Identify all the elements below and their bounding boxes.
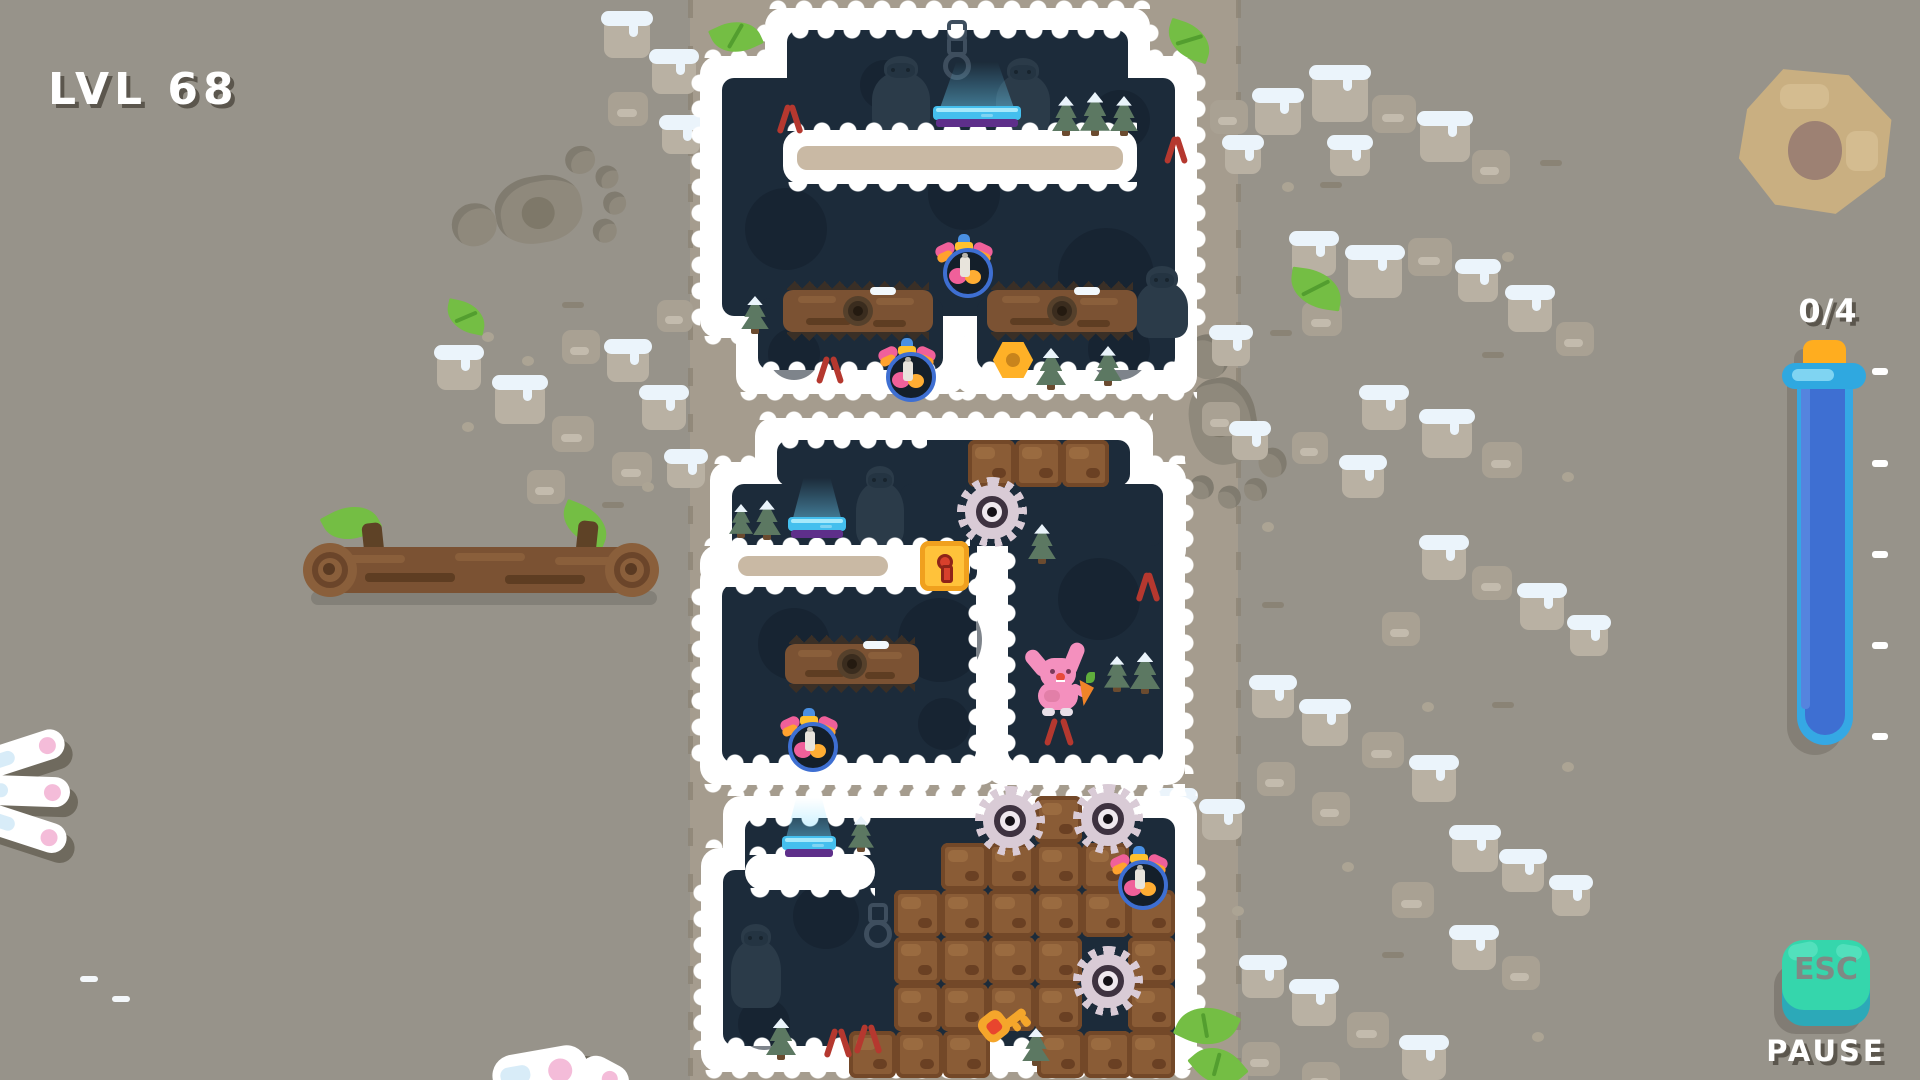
log-end [303,543,357,597]
crate-highlight [901,944,921,956]
snow-ceiling-scallops [777,440,927,453]
platform-icicles [745,888,875,908]
cave-shadow-blob [1058,558,1140,640]
yeti-eye [1014,70,1018,74]
pine-tree [1036,348,1066,390]
rock-tile [1458,266,1498,302]
snow-cap [1399,1035,1449,1050]
tube-collar-highlight [1792,369,1834,381]
pine-snow-cap [1058,96,1074,106]
log-streak [876,298,914,305]
snow-cap [601,11,653,26]
crate [1128,1031,1175,1078]
pebble [1232,906,1244,916]
crate-highlight [1042,803,1062,815]
rock-highlight [1510,973,1529,981]
crate-highlight [950,1038,970,1050]
rock-tile [1348,252,1402,298]
crate-shadow [1086,468,1100,478]
pine-tree [766,1018,796,1060]
snow-drip [1224,810,1233,825]
rock-tile [1502,956,1540,990]
leaf-vein [1201,1012,1209,1037]
potion-ball [886,352,936,402]
claw-marks [856,1024,880,1054]
snow-dash [80,976,98,982]
rock-tile [552,416,594,452]
rock-tile [607,346,649,382]
snow-cap [1249,675,1297,690]
rock-tile [1292,432,1328,464]
rock-tile [612,452,652,486]
crate-shadow [1059,824,1073,834]
crate [1084,1031,1131,1078]
footprint-toe [594,164,620,190]
crate-highlight [948,897,968,909]
grinder-log [987,290,1137,332]
pine-snow-cap [1087,92,1104,103]
rock-tile [437,352,481,390]
crate-shadow [1061,1059,1075,1069]
leaf-vein [1212,1052,1222,1076]
crate-highlight [1022,447,1042,459]
pine-snow-cap [1116,96,1132,106]
snow-drip [1436,766,1445,781]
rock-highlight [1300,448,1318,456]
snow-cap [492,375,548,390]
rock-tile [642,392,686,430]
rock-tile [1452,932,1496,970]
rock-tile [1422,542,1466,580]
pine-snow-cap [1100,346,1116,356]
rock-tile [1556,322,1594,356]
rock-tile [1362,732,1404,768]
rock-tile [1212,332,1250,366]
snow-cap [1455,259,1501,274]
rock-tile [1302,1062,1340,1080]
bunny-ear [489,1042,591,1080]
potion-collectible [786,708,832,764]
snow-drip [1316,990,1325,1005]
ground-dash [1320,182,1342,188]
snow-ceiling-scallops [787,30,1128,43]
snow-cap [1409,755,1459,770]
pine-tree [729,504,753,538]
rock-tile [1225,142,1261,174]
rock-highlight [665,316,683,324]
potion-ball [943,248,993,298]
snow-drip [1573,886,1582,901]
rock-tile [1392,882,1434,918]
snow-drip [676,60,685,75]
snow-scallops [736,392,965,405]
snow-cap [1327,135,1373,150]
spike-teeth [789,684,915,693]
snow-drip [1525,860,1534,875]
snow-drip [1365,466,1374,481]
crate [988,890,1035,937]
claw-stroke [854,1024,869,1054]
potion-progress-tube [1797,365,1853,745]
nut-highlight [1780,84,1829,109]
rock-tile [1422,416,1472,458]
log-streak [365,573,455,582]
footprint-heel [448,199,500,250]
rock-highlight [1491,460,1511,468]
rock-tile [667,456,705,488]
pad-highlight [981,114,993,117]
pebble [1262,522,1274,532]
level-label: LVL 68 [48,64,239,115]
snow-cap [1517,583,1567,598]
yeti-body [1136,282,1188,338]
game-viewport: LVL 68 0/4 ESC PAUSE [0,0,1920,1080]
pad-base [785,849,833,857]
rock-tile [604,18,650,58]
rock-highlight [1265,779,1284,787]
snow-cap [639,385,689,400]
rock-tile [1210,100,1248,134]
nut-hole [1788,121,1842,180]
crate [894,984,941,1031]
rock-tile [527,470,565,504]
crate-shadow [1108,1059,1122,1069]
pine-snow-cap [854,816,869,825]
snow-cap [1309,65,1371,80]
snow-cap [1252,88,1304,103]
ground-dash [1262,602,1284,608]
rock-tile [1472,566,1512,600]
crate-shadow [965,918,979,928]
saw-blade [1073,946,1143,1016]
crate [896,1031,943,1078]
snow-drip [1477,836,1486,851]
nut-hole [1006,353,1020,367]
log-core [323,563,335,575]
yeti-face [744,931,768,946]
snow-cap [1499,849,1547,864]
snow-cap [1419,409,1475,424]
snow-drip [1233,336,1242,351]
ground-dash [1482,352,1504,358]
platform-core [797,146,1123,170]
checkpoint-pad [788,517,846,531]
pad-highlight [812,844,824,847]
esc-pause-button[interactable]: ESC [1782,940,1870,1010]
pine-snow-cap [747,296,763,305]
crate-shadow [1012,918,1026,928]
log-streak [868,652,902,659]
rock-highlight [1356,1030,1377,1038]
crate [941,890,988,937]
rock-highlight [1320,809,1339,817]
rock-highlight [1311,319,1331,327]
log-snow [863,641,889,649]
rock-tile [1242,962,1284,998]
rock-tile [1232,428,1268,460]
rock-highlight [1564,339,1583,347]
potion-vial [903,361,913,381]
snow-drip [1327,710,1336,725]
footprint-toe [601,190,627,216]
pine-tree [1052,96,1080,136]
log-shadow [311,591,657,605]
bunny-eye [1066,669,1071,674]
grinder-hub-center [842,654,862,674]
pine-snow-cap [759,500,775,510]
pebble [522,356,534,366]
bunny-eye [1050,669,1055,674]
pebble [462,422,474,432]
rock-tile [608,92,648,126]
pad-highlight [785,838,833,842]
cave-shadow-blob [918,698,970,750]
tube-tick [1872,551,1888,558]
pine-tree [1080,92,1110,136]
snow-scallops [1185,474,1197,774]
pad-base [936,119,1018,127]
checkpoint-pad [933,106,1021,120]
crate [1062,440,1109,487]
crate-shadow [1039,468,1053,478]
rock-tile [495,382,545,424]
snow-cap [1505,285,1555,300]
ear-pad [599,1068,621,1080]
crate-highlight [1042,850,1062,862]
log-snow [870,287,896,295]
pebble [1422,702,1434,712]
snow-drip [666,396,675,411]
bunny-patch [1044,690,1060,702]
rock-highlight [621,469,641,477]
snow-drip [1532,296,1541,311]
yeti-face [1150,273,1175,288]
snow-platform [745,854,875,890]
snow-drip [1378,256,1387,271]
rock-tile [1292,986,1336,1026]
pine-tree [1130,652,1160,694]
pine-snow-cap [1137,652,1154,662]
rock-tile [1570,622,1608,656]
snow-cap [1199,799,1245,814]
snow-drip [1480,270,1489,285]
snow-drip [1352,146,1361,161]
snow-cap [664,449,708,464]
paw-stripe [0,811,17,832]
potion-ball [1118,860,1168,910]
pebble [1562,472,1574,482]
snow-cap [1289,231,1339,246]
crate-shadow [1012,965,1026,975]
rock-tile [1408,238,1452,276]
snow-drip [1252,432,1261,447]
esc-key-label: ESC [1782,952,1870,987]
snow-drip [1275,686,1284,701]
leaf-vein [1175,34,1203,46]
snow-cap [1339,455,1387,470]
grinder-log [783,290,933,332]
pink-bunny-character [1026,650,1092,716]
collectible-counter: 0/4 [1786,292,1870,330]
crate [988,937,1035,984]
yeti-eye [906,68,910,72]
crate-shadow [1059,965,1073,975]
crate-shadow [1059,1012,1073,1022]
snow-drip [1316,242,1325,257]
rock-tile [1508,292,1552,332]
rock-tile [1412,762,1456,802]
snow-drip [1280,99,1289,114]
pebble [482,332,494,342]
pad-highlight [791,519,843,523]
potion-ball [788,722,838,772]
rock-tile [1330,142,1370,176]
checkpoint-pad [782,836,836,850]
crate-shadow [1012,871,1026,881]
rock-highlight [1480,167,1499,175]
log-streak [1010,318,1055,325]
rock-tile [1252,682,1294,718]
potion-vial [805,731,815,751]
crate-shadow [1106,918,1120,928]
crate-highlight [948,850,968,862]
crate-highlight [1042,991,1062,1003]
yeti-silhouette [731,924,781,1008]
pine-tree [753,500,781,540]
log-streak [873,320,906,327]
yeti-silhouette [1136,266,1188,338]
pine-tree [741,296,769,334]
crate-shadow [1152,965,1166,975]
grinder-log [785,644,919,684]
rock-tile [1402,1042,1446,1080]
claw-marks [818,356,842,384]
log-end [605,543,659,597]
potion-vial-cap [1137,865,1143,870]
snow-cap [1222,135,1264,150]
spike-teeth [789,635,915,644]
crate-shadow [1152,1059,1166,1069]
crate-shadow [918,1012,932,1022]
log-streak [1002,296,1040,303]
crate-highlight [1135,944,1155,956]
footprint-toe [1242,476,1268,502]
platform-icicles [783,182,1137,202]
ear-stripe [499,1064,532,1080]
snow-drip [1448,122,1457,137]
claw-marks [1138,572,1158,602]
snow-drip [523,386,532,401]
rock-highlight [535,487,554,495]
rock-tile [1202,806,1242,840]
footprint-toe [563,143,597,176]
snow-cap [1229,421,1271,436]
log-streak [505,575,585,584]
tube-collar [1782,363,1866,389]
pine-tree [1028,524,1056,564]
grinder-hub-center [1052,301,1072,321]
leaf-vein [454,310,478,323]
snow-cap [1239,955,1287,970]
pine-snow-cap [1034,524,1050,534]
snow-drip [461,356,470,371]
pine-snow-cap [773,1018,790,1028]
pine-snow-cap [1028,1028,1044,1037]
bunny-paw-finger [0,774,70,807]
snow-drip [1446,546,1455,561]
leaf-icon [1288,267,1345,312]
leaf-icon [443,298,488,336]
pad-highlight [936,108,1018,112]
rock-tile [1382,612,1420,646]
crate-highlight [1091,1038,1111,1050]
yeti-eye [748,936,752,940]
claw-marks [826,1028,850,1058]
log-streak [865,672,894,679]
paw-pad [44,784,62,802]
snow-drip [1426,1046,1435,1061]
crate [1015,440,1062,487]
crate [943,1031,990,1078]
pebble [642,482,654,492]
rock-highlight [1250,1059,1269,1067]
crate-highlight [1089,897,1109,909]
yeti-eye [883,478,887,482]
snow-floor-scallops [722,750,976,763]
log-streak [806,318,851,325]
rock-tile [1502,856,1544,892]
paw-pad [37,735,58,756]
crate-highlight [995,944,1015,956]
tube-tick [1872,460,1888,467]
spike-teeth [991,281,1133,290]
crate [941,843,988,890]
rock-tile [562,330,600,364]
crate-highlight [948,944,968,956]
rock-tile [1257,762,1295,796]
ground-dash [1540,160,1562,166]
snow-drip [630,350,639,365]
saw-blade [1073,784,1143,854]
snow-cap [1549,875,1593,890]
grinder-hub-center [848,301,868,321]
snow-drip [1343,76,1352,91]
crate-shadow [967,1059,981,1069]
pad-base [791,530,843,538]
paw-pad [38,827,59,848]
rock-tile [1362,392,1406,430]
crate-highlight [901,897,921,909]
pine-tree [848,816,874,852]
crate-shadow [920,1059,934,1069]
snow-cap [1417,111,1473,126]
rock-tile [1372,95,1416,133]
crate-shadow [1152,1012,1166,1022]
log-streak [455,553,525,561]
footprint-toe [591,216,619,244]
potion-collectible [884,338,930,394]
potion-vial-cap [962,253,968,258]
carrot-leaf [1086,672,1095,683]
pebble [1562,762,1574,772]
ground-dash [1382,952,1404,958]
rock-tile [1347,1012,1389,1048]
snow-cap [604,339,652,354]
lock-block [920,541,969,591]
snow-wall-scallops [1007,548,1019,763]
snow-cap [1359,385,1409,400]
snow-drip [1544,594,1553,609]
